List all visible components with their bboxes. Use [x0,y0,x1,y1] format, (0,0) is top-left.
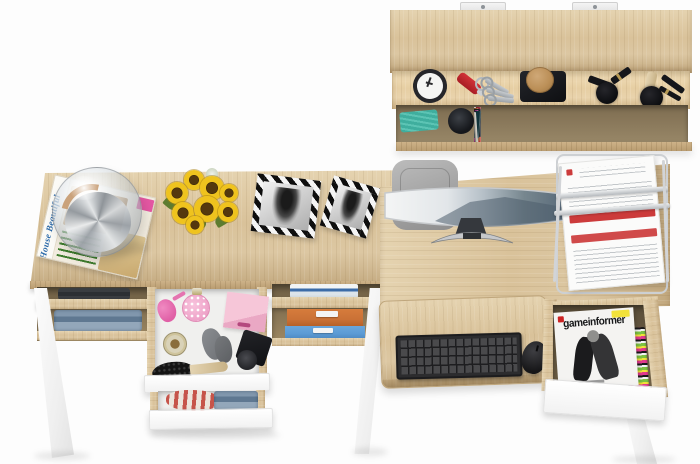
document-text [579,163,646,178]
keyboard [395,332,522,379]
box-label-tab [313,328,333,333]
drawer-rail-left [150,392,158,410]
box-clasp [237,322,250,328]
folded-jeans [214,391,258,410]
pink-gift-box [223,292,269,333]
floor-shadow [34,452,90,460]
floor-shadow [612,456,676,463]
drawer-front-right [543,379,667,421]
floor-shadow [352,448,388,456]
sunflower [186,216,204,234]
sunflower-bouquet [160,168,242,234]
shelf-board-edge [272,297,380,308]
picture-frame-left [251,173,322,238]
gameinformer-cover: gameinformer [553,307,638,390]
curved-monitor [375,176,575,248]
folded-light-clothes [290,284,358,298]
product-render: House Beautiful [0,0,700,464]
striped-shirt [166,390,220,411]
document-header-bar [571,228,657,243]
cream-jar [163,332,187,356]
powder-puff [596,82,618,104]
sunflower [166,182,188,204]
document-logo [566,169,573,176]
dark-bowl [448,108,474,134]
perfume-cap [192,288,202,295]
book-row [474,107,686,145]
shelf-top-board [390,10,692,73]
drawer-front-bottom [149,408,273,430]
document-stack [558,155,666,291]
perfume-bottle [182,294,210,322]
floor-shadow [150,430,280,440]
teal-pouch [399,109,439,132]
makeup-set-left [588,72,636,106]
sunflower [220,184,238,202]
keyboard-keys [401,337,518,374]
magazine-title: gameinformer [557,314,631,331]
box-label-tab [316,311,338,317]
shelf-board-edge [37,299,153,309]
compartment-bottom-edge [272,338,380,346]
dome-table-lamp [52,167,142,257]
lamp-highlight [67,176,101,200]
cork-ball [526,67,554,93]
shelf-bottom-edge [396,142,692,151]
cosmetic-jar-dark [237,350,257,370]
sunflower [218,202,238,222]
document-text [573,242,660,283]
folded-jeans [54,310,142,331]
